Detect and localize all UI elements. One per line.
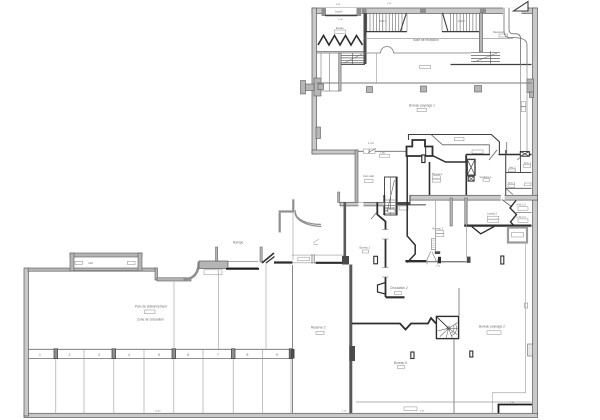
svg-text:5: 5 — [158, 353, 160, 357]
svg-text:Bureau paysage 1: Bureau paysage 1 — [409, 104, 435, 108]
svg-text:Landia 2: Landia 2 — [487, 212, 498, 216]
svg-text:Bureau 2: Bureau 2 — [360, 246, 371, 250]
svg-text:24x17: 24x17 — [458, 19, 466, 23]
svg-text:Bureau 1: Bureau 1 — [432, 172, 443, 176]
svg-text:Salle de réception: Salle de réception — [413, 38, 439, 42]
svg-text:a W.C.4: a W.C.4 — [517, 215, 527, 219]
svg-text:7: 7 — [217, 353, 219, 357]
svg-text:a W.C.3: a W.C.3 — [517, 203, 527, 207]
svg-text:Rampe: Rampe — [233, 241, 244, 245]
svg-text:1 vol: 1 vol — [338, 19, 343, 21]
svg-text:Vélo: Vélo — [88, 261, 94, 265]
svg-text:Lav.: Lav. — [381, 151, 386, 155]
svg-text:14.40: 14.40 — [155, 411, 161, 413]
svg-text:1 vol: 1 vol — [436, 266, 441, 268]
svg-text:6: 6 — [187, 353, 189, 357]
svg-text:Parc de stationnement: Parc de stationnement — [135, 305, 167, 309]
svg-text:Bureau 5: Bureau 5 — [394, 361, 407, 365]
svg-text:Circulation 2: Circulation 2 — [390, 286, 408, 290]
svg-text:Accès: Accès — [335, 10, 343, 14]
svg-text:Zone de circulation: Zone de circulation — [137, 318, 164, 322]
svg-text:9: 9 — [276, 353, 278, 357]
svg-text:24x17: 24x17 — [379, 19, 387, 23]
svg-text:2: 2 — [69, 353, 71, 357]
svg-text:3: 3 — [98, 353, 100, 357]
svg-text:8: 8 — [247, 353, 249, 357]
svg-text:Bureau 3: Bureau 3 — [433, 227, 444, 231]
svg-text:4: 4 — [128, 353, 130, 357]
svg-text:Entrée: Entrée — [336, 26, 344, 30]
svg-text:1: 1 — [39, 353, 41, 357]
svg-text:Coin café: Coin café — [363, 174, 375, 178]
svg-text:Réserve 2: Réserve 2 — [311, 326, 326, 330]
svg-text:Descente: Descente — [493, 30, 505, 34]
svg-text:Bureau paysage 2: Bureau paysage 2 — [479, 325, 505, 329]
svg-text:1 vol: 1 vol — [368, 141, 374, 145]
